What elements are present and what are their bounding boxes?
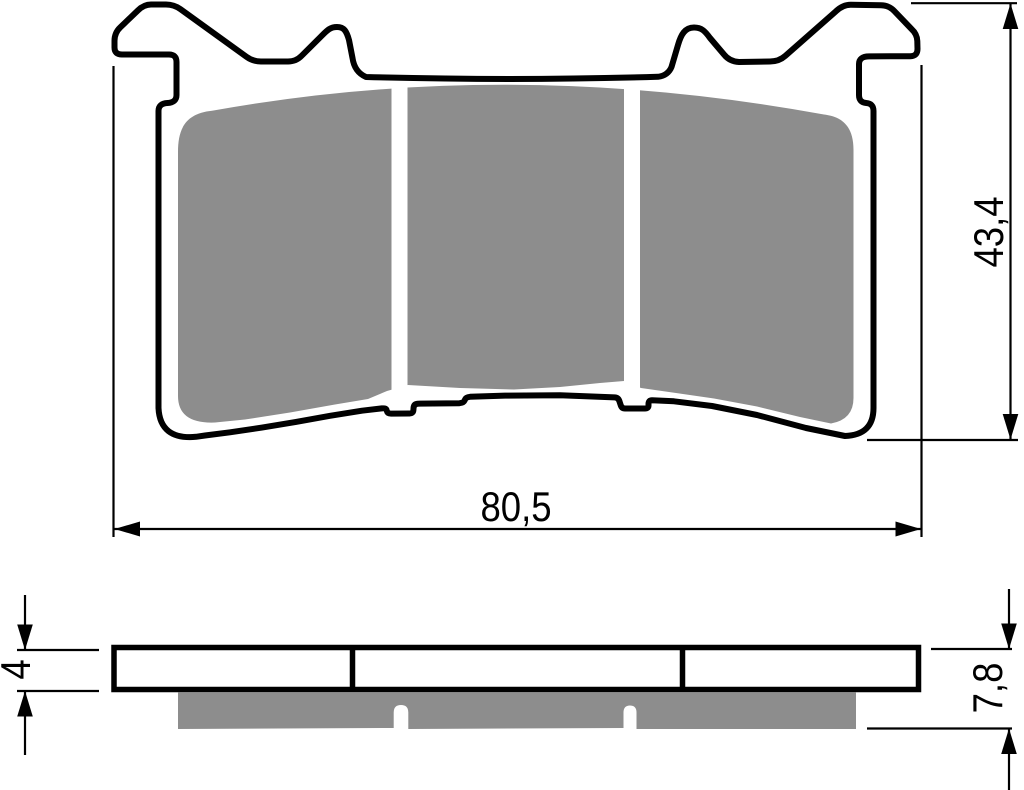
svg-text:43,4: 43,4 xyxy=(966,196,1013,267)
svg-text:80,5: 80,5 xyxy=(480,484,551,531)
svg-text:4: 4 xyxy=(0,659,40,679)
svg-text:7,8: 7,8 xyxy=(965,663,1012,714)
